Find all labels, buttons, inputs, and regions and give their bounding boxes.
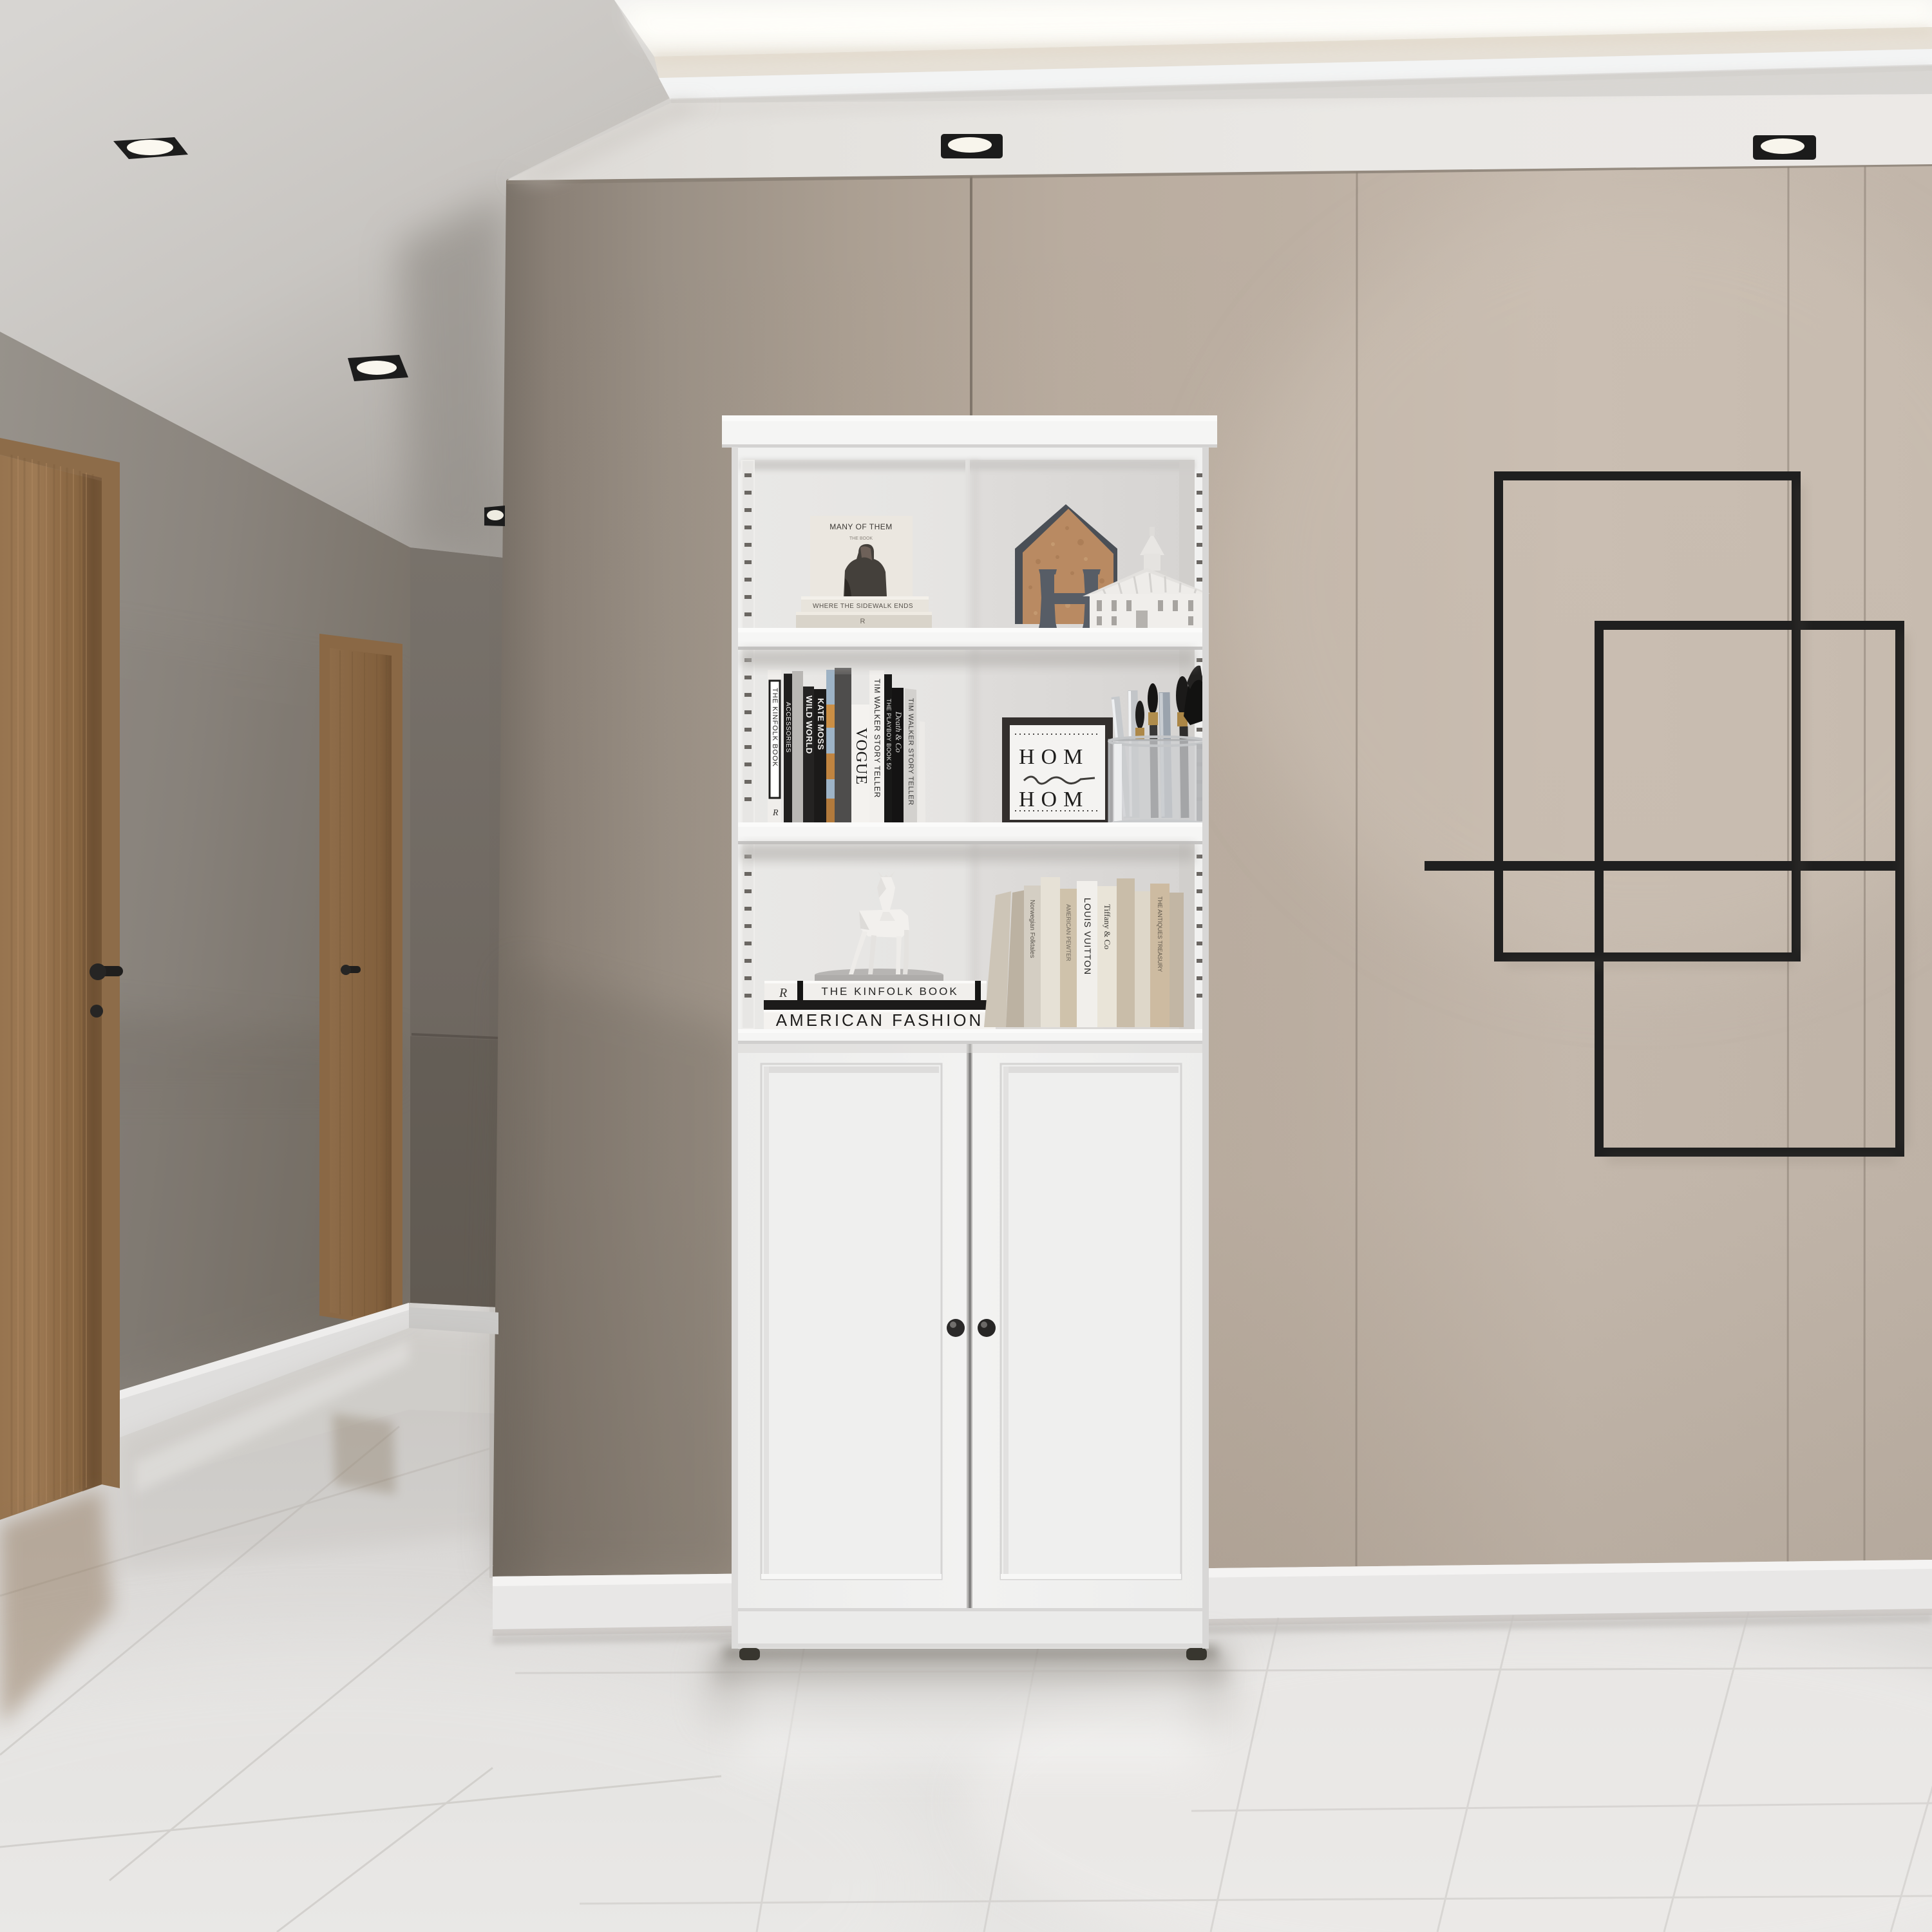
svg-text:HOM: HOM [1019,745,1089,769]
svg-text:THE BOOK: THE BOOK [849,536,873,541]
svg-text:LOUIS VUITTON: LOUIS VUITTON [1083,898,1093,975]
svg-text:AMERICAN PEWTER: AMERICAN PEWTER [1065,904,1072,961]
svg-text:R: R [779,986,787,1000]
svg-text:THE KINFOLK BOOK: THE KINFOLK BOOK [821,985,958,998]
svg-text:MANY OF THEM: MANY OF THEM [829,522,893,531]
svg-text:R: R [860,618,866,625]
svg-text:WILD WORLD: WILD WORLD [804,696,814,754]
svg-text:KATE MOSS: KATE MOSS [816,698,826,750]
svg-text:TIM WALKER STORY TELLER: TIM WALKER STORY TELLER [873,679,882,798]
svg-text:THE ANTIQUES TREASURY: THE ANTIQUES TREASURY [1157,896,1163,972]
svg-text:Norwegian Folktales: Norwegian Folktales [1028,900,1036,958]
svg-text:AMERICAN FASHION: AMERICAN FASHION [776,1010,984,1030]
svg-text:Tiffany & Co: Tiffany & Co [1103,904,1112,949]
svg-text:R: R [772,808,779,818]
svg-text:HOM: HOM [1019,788,1089,811]
svg-text:WHERE THE SIDEWALK ENDS: WHERE THE SIDEWALK ENDS [813,603,913,610]
svg-text:Death & Co: Death & Co [894,711,904,753]
svg-text:ACCESSORIES: ACCESSORIES [784,702,791,753]
svg-text:TIM WALKER STORY TELLER: TIM WALKER STORY TELLER [907,698,914,806]
svg-text:VOGUE: VOGUE [853,728,869,785]
svg-text:THE KINFOLK BOOK: THE KINFOLK BOOK [771,688,779,767]
svg-text:THE PLAYBOY BOOK 50: THE PLAYBOY BOOK 50 [885,699,892,770]
